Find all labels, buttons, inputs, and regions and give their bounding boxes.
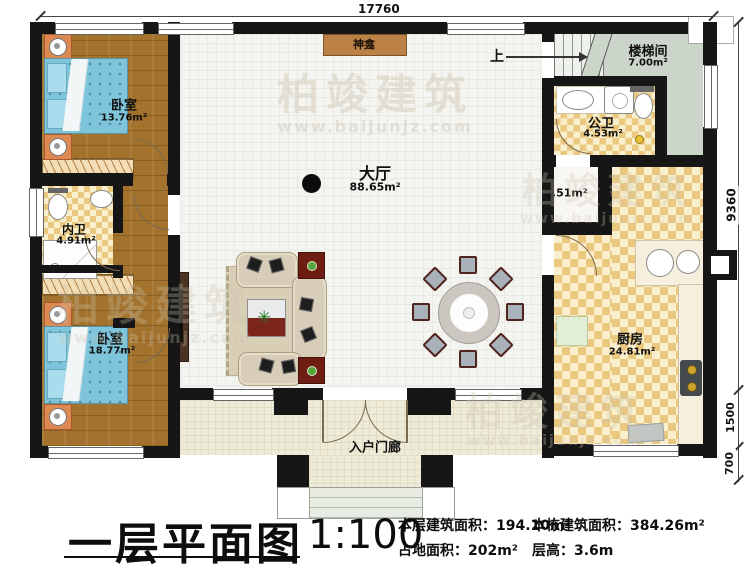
- sink: [562, 90, 594, 110]
- burner: [687, 365, 697, 375]
- window: [158, 23, 234, 35]
- floor-plan-canvas: ✳ 神龛: [0, 0, 750, 573]
- dining-chair: [506, 303, 524, 321]
- kitchen-sink: [646, 249, 674, 277]
- stairwell-area: 7.00m²: [628, 58, 667, 69]
- dimension-line-top: [40, 16, 714, 17]
- wall: [542, 22, 554, 42]
- window: [29, 188, 44, 237]
- bedroom-bottom-area: 18.77m²: [89, 346, 135, 357]
- cushion: [281, 359, 296, 374]
- kitchen-mat: [627, 423, 664, 443]
- nightstand: [44, 404, 72, 430]
- cushion: [299, 297, 314, 312]
- nightstand: [44, 134, 72, 160]
- public-bath-area: 4.53m²: [583, 129, 622, 140]
- inner-bath-area: 4.91m²: [56, 236, 95, 247]
- fridge: [556, 316, 588, 346]
- wall: [168, 235, 180, 458]
- stat-story-height: 层高：3.6m: [532, 540, 613, 560]
- toilet: [48, 194, 68, 220]
- plant-icon: ✳: [257, 308, 271, 328]
- wall: [175, 388, 213, 400]
- dimension-right-steps: 700: [723, 449, 736, 478]
- wall: [42, 173, 133, 186]
- stat-footprint-value: 202m²: [468, 543, 518, 559]
- entry-door-leaf: [406, 400, 408, 442]
- wall: [30, 446, 48, 458]
- wall: [542, 222, 612, 235]
- ceiling-light-icon: [635, 135, 644, 144]
- porch-floor-center: [309, 455, 421, 487]
- title-underline: [64, 556, 300, 558]
- porch-label: 入户门廊: [349, 437, 401, 456]
- stat-footprint: 占地面积：202m²: [398, 540, 518, 560]
- porch-column: [277, 455, 309, 487]
- stat-footprint-label: 占地面积：: [398, 543, 468, 559]
- lamp-icon: [49, 306, 67, 324]
- wall: [232, 22, 447, 34]
- wall: [677, 444, 717, 456]
- wall: [554, 76, 667, 86]
- kitchen-label: 厨房: [617, 329, 643, 348]
- wall: [703, 127, 717, 458]
- stat-story-height-label: 层高：: [532, 543, 574, 559]
- stat-building-area-value: 384.26m²: [630, 518, 705, 534]
- lamp-icon: [49, 138, 67, 156]
- wall: [167, 173, 180, 186]
- wall: [168, 22, 180, 195]
- sink: [90, 190, 113, 208]
- dining-chair: [459, 350, 477, 368]
- coffee-table: ✳: [247, 299, 286, 337]
- wall: [113, 318, 135, 328]
- wall-pilaster: [407, 388, 451, 415]
- nightstand: [44, 34, 72, 60]
- nightstand: [44, 302, 72, 328]
- stove: [680, 360, 702, 396]
- kitchen-sink: [676, 250, 700, 274]
- stat-building-area-label: 本栋建筑面积：: [532, 518, 630, 534]
- wall: [30, 22, 42, 188]
- dimension-top-width: 17760: [355, 2, 403, 16]
- burner: [687, 382, 697, 392]
- lamp-icon: [49, 38, 67, 56]
- wall: [703, 22, 717, 65]
- stat-floor-area-label: 本层建筑面积：: [398, 518, 496, 534]
- dimension-right-porch: 1500: [724, 399, 737, 436]
- up-arrow: [506, 56, 586, 58]
- wall: [655, 76, 667, 155]
- wall: [30, 235, 42, 458]
- stat-building-area: 本栋建筑面积：384.26m²: [532, 515, 705, 535]
- shrine-label: 神龛: [353, 36, 375, 52]
- bedroom-top-area: 13.76m²: [101, 113, 147, 124]
- washer-door: [612, 93, 628, 109]
- wall: [542, 155, 556, 167]
- dimension-line-right: [738, 22, 739, 482]
- wall: [142, 22, 158, 34]
- dining-table: [438, 282, 500, 344]
- sofa: [236, 252, 298, 288]
- window: [55, 23, 144, 35]
- arrowhead-icon: [579, 52, 588, 62]
- toilet: [630, 86, 654, 92]
- stat-story-height-value: 3.6m: [574, 543, 613, 559]
- structural-column-dot: [302, 174, 321, 193]
- window: [455, 389, 522, 401]
- window: [213, 389, 274, 401]
- dining-chair: [459, 256, 477, 274]
- dimension-right-main: 9360: [725, 185, 739, 224]
- window: [447, 23, 525, 35]
- side-table: [298, 252, 325, 279]
- lamp-icon: [49, 408, 67, 426]
- hall-area: 88.65m²: [349, 181, 400, 194]
- window: [593, 445, 679, 457]
- bedroom-top-label: 卧室: [111, 95, 137, 114]
- window: [704, 65, 718, 129]
- toilet: [48, 188, 68, 193]
- pillow: [47, 63, 67, 93]
- window: [48, 447, 144, 459]
- pillow: [47, 332, 67, 362]
- dining-chair: [412, 303, 430, 321]
- wall-pilaster: [274, 388, 308, 415]
- chimney-flue: [711, 256, 729, 274]
- toilet: [634, 93, 653, 119]
- stairs-up-label: 上: [490, 46, 504, 66]
- side-table: [298, 357, 325, 384]
- lazy-susan: [463, 307, 475, 319]
- closet-area: 1.51m²: [544, 187, 587, 200]
- entry-door-leaf: [322, 400, 324, 442]
- wall: [113, 186, 123, 233]
- kitchen-area: 24.81m²: [609, 347, 655, 358]
- page-title: 一层平面图: [68, 508, 303, 572]
- wall: [542, 275, 554, 458]
- sofa: [292, 276, 327, 360]
- porch-column: [421, 455, 453, 487]
